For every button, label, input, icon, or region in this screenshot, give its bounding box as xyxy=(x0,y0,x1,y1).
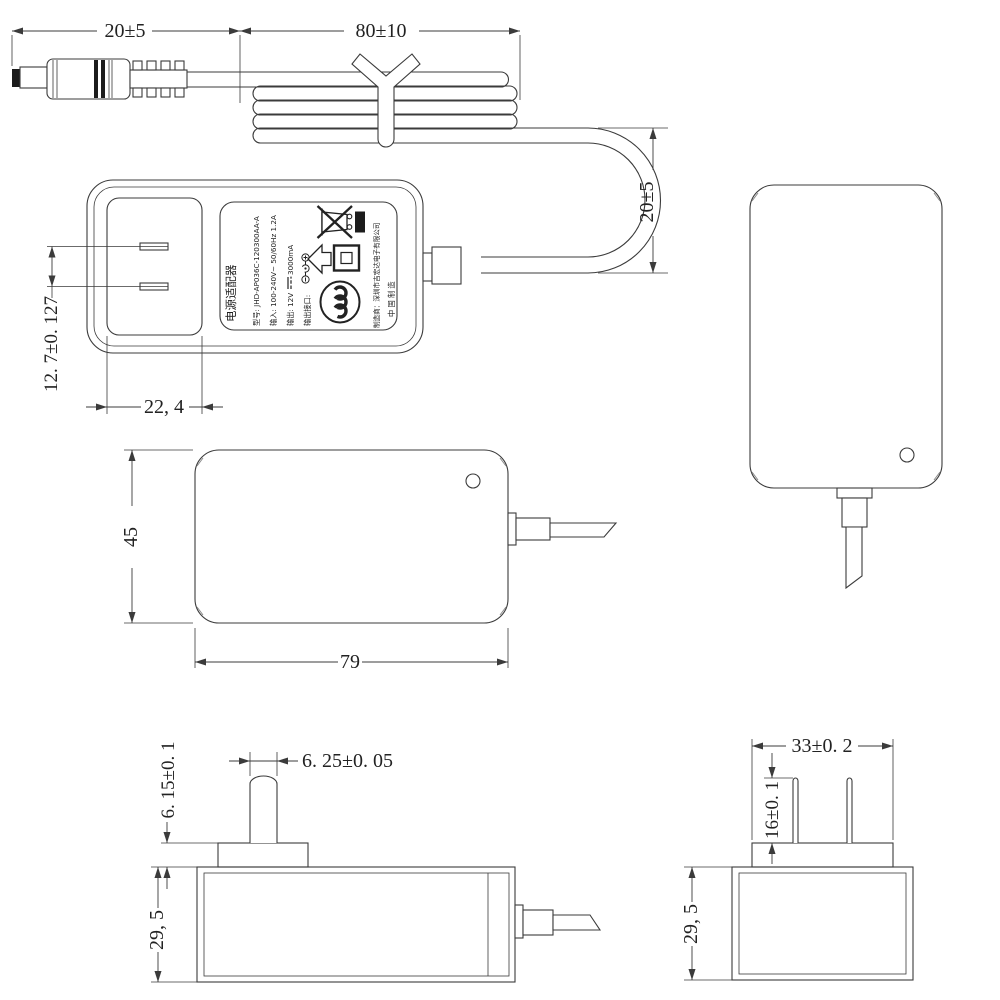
label-output-suffix: 3000mA xyxy=(286,245,295,275)
body-outline xyxy=(750,185,942,488)
cable-loop xyxy=(481,128,661,273)
dim-pin-pitch-group: 12. 7±0. 127 xyxy=(41,247,140,392)
dim-face-width: 22, 4 xyxy=(144,396,184,418)
mains-prongs xyxy=(140,243,168,290)
adapter-drawing: 20±5 80±10 xyxy=(0,0,1000,1000)
plug-tip xyxy=(12,69,20,87)
bottom-end-view xyxy=(732,778,913,980)
label-model: 型号: JHD-AP036C-120300AA-A xyxy=(252,216,261,326)
dim-blade-width-group: 6. 25±0. 05 xyxy=(229,750,393,776)
label-input: 输入: 100-240V~ 50/60Hz 1.2A xyxy=(269,215,278,326)
mains-blade xyxy=(250,776,277,843)
dim-thickness-left-group: 29, 5 xyxy=(146,867,197,982)
mains-blade-left xyxy=(793,778,798,843)
plug-strain-relief xyxy=(130,70,187,88)
dim-thickness-right: 29, 5 xyxy=(680,904,702,944)
dim-pin-pitch: 12. 7±0. 127 xyxy=(41,296,62,392)
output-strain-relief xyxy=(515,905,600,938)
body-outline xyxy=(195,450,508,623)
dim-body-length-group: 79 xyxy=(195,628,508,673)
dim-boss-width: 33±0. 2 xyxy=(792,735,853,757)
dim-thickness-left: 29, 5 xyxy=(146,910,168,950)
dim-blade-length-group: 16±0. 1 xyxy=(762,753,793,864)
screw-hole xyxy=(900,448,914,462)
dim-body-length: 79 xyxy=(340,651,360,673)
class-ii-double-square-icon xyxy=(334,246,359,271)
body-outline xyxy=(732,867,913,980)
output-cable xyxy=(846,527,862,588)
output-strain-relief xyxy=(837,488,872,588)
plug-face xyxy=(107,198,202,335)
output-strain-relief xyxy=(508,513,616,545)
label-product-name: 电源适配器 xyxy=(224,264,238,322)
plug-boss xyxy=(218,843,308,867)
output-cable xyxy=(550,523,616,537)
dc-plug-view xyxy=(12,59,187,99)
bottom-side-view xyxy=(197,776,600,982)
cable-coil xyxy=(187,54,588,147)
dim-face-width-group: 22, 4 xyxy=(86,336,223,418)
dim-loop-height: 20±5 xyxy=(636,182,658,223)
output-cable xyxy=(553,915,600,930)
dim-coil-length: 80±10 xyxy=(356,20,407,42)
dim-loop-height-group: 20±5 xyxy=(598,128,668,273)
body-outline xyxy=(197,867,515,982)
label-made-in: 中 国 制 造 xyxy=(387,281,396,317)
dim-blade-length: 16±0. 1 xyxy=(762,781,783,839)
back-view xyxy=(750,185,942,588)
technical-drawing-page: 20±5 80±10 xyxy=(0,0,1000,1000)
dim-blade-width: 6. 25±0. 05 xyxy=(302,750,393,772)
label-output-port: 输出接口: xyxy=(303,295,312,326)
dim-plug-length: 20±5 xyxy=(105,20,146,42)
plug-boss xyxy=(752,843,893,867)
mains-blade-right xyxy=(847,778,852,843)
dim-body-height-group: 45 xyxy=(120,450,193,623)
weee-crossed-bin-icon xyxy=(318,206,353,238)
label-manufacturer: 制造商：深圳市吉宏达电子有限公司 xyxy=(372,223,381,329)
front-view: 电源适配器 型号: JHD-AP036C-120300AA-A 输入: 100-… xyxy=(87,180,461,353)
output-strain-relief xyxy=(423,247,461,284)
plug-body xyxy=(47,59,130,99)
plug-barrel xyxy=(20,67,47,88)
hollow-arrow-icon xyxy=(308,245,331,273)
dim-thickness-right-group: 29, 5 xyxy=(680,867,732,980)
dim-boss-height: 6. 15±0. 1 xyxy=(158,742,179,819)
side-view xyxy=(195,450,616,623)
rating-label: 电源适配器 型号: JHD-AP036C-120300AA-A 输入: 100-… xyxy=(220,202,397,330)
screw-hole xyxy=(466,474,480,488)
dc-symbol-icon xyxy=(288,277,291,289)
label-output-prefix: 输出: 12V xyxy=(286,293,295,326)
dim-body-height: 45 xyxy=(120,527,142,547)
solid-bar-icon xyxy=(355,212,365,233)
ccc-certification-icon xyxy=(321,282,360,323)
